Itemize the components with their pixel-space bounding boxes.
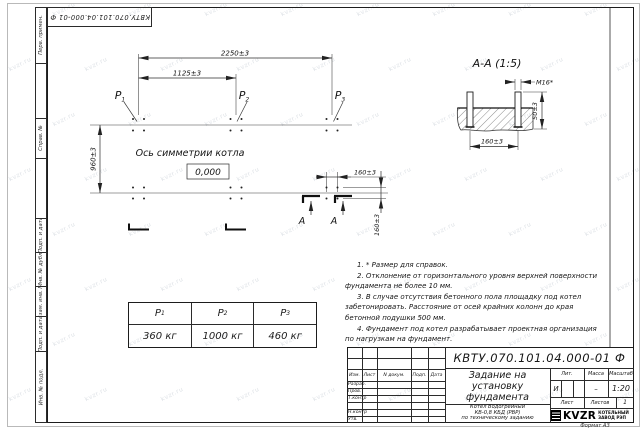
tb-lit-value: И: [551, 381, 561, 396]
loads-value-p3: 460 кг: [254, 325, 316, 347]
strip-label-perv-primen: Перв. примен.: [35, 7, 47, 63]
tb-scale-value: 1:20: [609, 381, 633, 396]
doc-number-top-box: КВТУ.070.101.04.000-01 Ф: [47, 7, 152, 27]
tb-title-line: установку: [472, 381, 523, 392]
loads-table-header-row: P1 P2 P3: [129, 303, 316, 325]
tb-sheets-label: Листов: [585, 398, 615, 407]
notes: 1. * Размер для справок.2. Отклонение от…: [345, 260, 601, 345]
note-line: 4. Фундамент под котел разрабатывает про…: [345, 324, 601, 345]
tb-subtitle-line: по техническому заданию: [461, 416, 533, 422]
tb-line: [347, 358, 445, 359]
tb-subtitle: Котел Водогрейный КВ-0,8 КБД (РВР) по те…: [446, 405, 549, 422]
company-name-line: ЗАВОД РЭП: [598, 416, 629, 421]
company-logo: KVZR КОТЕЛЬНЫЙ ЗАВОД РЭП: [551, 409, 633, 422]
kvzr-emblem-icon: [551, 410, 561, 421]
tb-col-podp: Подп.: [411, 370, 428, 380]
tb-sheets-value: 1: [617, 398, 633, 407]
tb-mass-value: –: [585, 381, 607, 396]
strip-label-vzam-inv: Взам. инв. №: [35, 286, 47, 316]
tb-scale-label: Масштаб: [609, 369, 633, 379]
tb-col-data: Дата: [428, 370, 445, 380]
loads-table: P1 P2 P3 360 кг 1000 кг 460 кг: [128, 302, 317, 348]
tb-row-nkontr: Н.контр: [348, 409, 376, 416]
format-note: Формат А3: [545, 423, 644, 429]
tb-mass-label: Масса: [585, 369, 607, 379]
tb-line: [573, 380, 574, 397]
strip-divider: [35, 158, 47, 159]
tb-col-list: Лист: [362, 370, 377, 380]
tb-doc-number: КВТУ.070.101.04.000-01 Ф: [446, 348, 633, 367]
loads-value-p2: 1000 кг: [192, 325, 255, 347]
loads-table-value-row: 360 кг 1000 кг 460 кг: [129, 325, 316, 347]
tb-sheet-label: Лист: [551, 398, 583, 407]
tb-title: Задание на установку фундамента: [446, 369, 549, 403]
tb-title-line: Задание на: [469, 370, 527, 381]
tb-col-izm: Изм.: [347, 370, 362, 380]
loads-header-p1: P1: [129, 303, 192, 325]
note-line: 3. В случае отсутствия бетонного пола пл…: [345, 292, 601, 324]
tb-line: [561, 380, 562, 397]
tb-title-line: фундамента: [466, 392, 529, 403]
kvzr-logo-text: KVZR: [563, 410, 596, 422]
note-line: 1. * Размер для справок.: [345, 260, 601, 271]
loads-header-p2: P2: [192, 303, 255, 325]
strip-label-inv-dubl: Инв. № дубл.: [35, 252, 47, 286]
strip-label-podp-data-2: Подп. и дата: [35, 316, 47, 351]
loads-value-p1: 360 кг: [129, 325, 192, 347]
tb-row-prov: Пров.: [348, 388, 376, 395]
tb-row-razrab: Разраб.: [348, 381, 376, 388]
loads-header-p3: P3: [254, 303, 316, 325]
tb-row-tkontr: Т.контр: [348, 395, 376, 402]
tb-col-ndokum: N докум.: [377, 370, 411, 380]
tb-line: [347, 402, 445, 403]
strip-divider: [35, 63, 47, 64]
note-line: 2. Отклонение от горизонтального уровня …: [345, 271, 601, 292]
company-name: КОТЕЛЬНЫЙ ЗАВОД РЭП: [598, 411, 629, 421]
strip-label-inv-podl: Инв. № подл.: [35, 351, 47, 423]
drawing-sheet: kvzr.rukvzr.rukvzr.rukvzr.rukvzr.rukvzr.…: [0, 0, 644, 430]
strip-label-sprav-no: Справ. №: [35, 118, 47, 158]
tb-lit-label: Лит.: [551, 369, 583, 379]
tb-row-utv: Утв.: [348, 416, 376, 423]
strip-label-podp-data-1: Подп. и дата: [35, 218, 47, 252]
